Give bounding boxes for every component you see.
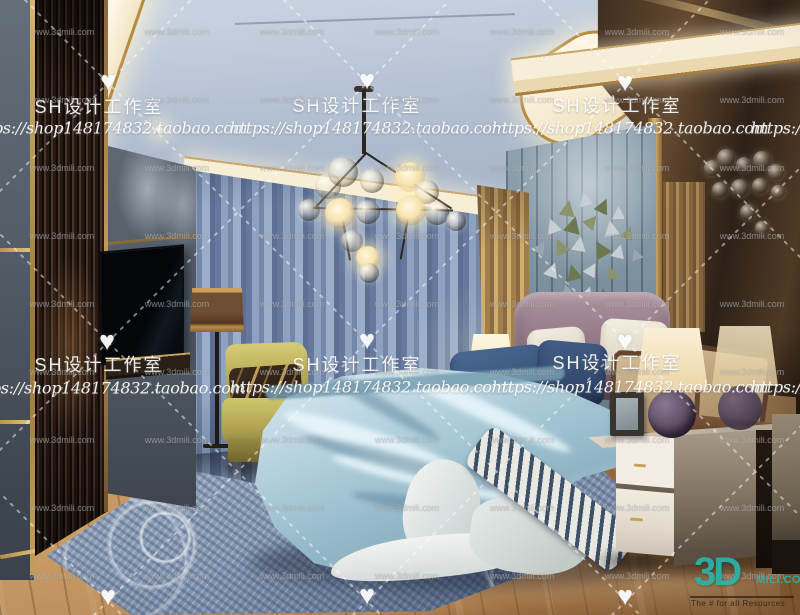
watermark-3dmili-text: www.3dmili.com — [720, 435, 785, 445]
watermark-3dmili-text: www.3dmili.com — [605, 299, 670, 309]
watermark-shop-url: https://shop148174832.taobao.com — [0, 119, 247, 138]
watermark-3dmili-text: www.3dmili.com — [720, 95, 785, 105]
watermark-shop-url: https://shop148174832.taobao.com — [230, 378, 507, 397]
watermark-3dmili-text: www.3dmili.com — [30, 231, 95, 241]
watermark-3dmili-text: www.3dmili.com — [605, 231, 670, 241]
watermark-3dmili-text: www.3dmili.com — [490, 163, 555, 173]
watermark-3dmili-text: www.3dmili.com — [490, 367, 555, 377]
watermark-heart-icon: ♥ — [359, 580, 375, 611]
watermark-3dmili-text: www.3dmili.com — [30, 503, 95, 513]
watermark-3dmili-text: www.3dmili.com — [490, 231, 555, 241]
watermark-3dmili-text: www.3dmili.com — [375, 503, 440, 513]
watermark-3dmili-text: www.3dmili.com — [720, 231, 785, 241]
watermark-3dmili-text: www.3dmili.com — [30, 163, 95, 173]
watermark-3dmili-text: www.3dmili.com — [260, 435, 325, 445]
logo-3d-text: 3D — [694, 550, 739, 595]
watermark-3dmili-text: www.3dmili.com — [375, 163, 440, 173]
watermark-3dmili-text: www.3dmili.com — [720, 163, 785, 173]
watermark-3dmili-text: www.3dmili.com — [375, 27, 440, 37]
watermark-3dmili-text: www.3dmili.com — [490, 503, 555, 513]
watermark-3dmili-text: www.3dmili.com — [145, 299, 210, 309]
watermark-3dmili-text: www.3dmili.com — [605, 367, 670, 377]
watermark-3dmili-text: www.3dmili.com — [145, 571, 210, 581]
watermark-3dmili-text: www.3dmili.com — [145, 503, 210, 513]
watermark-3dmili-text: www.3dmili.com — [375, 231, 440, 241]
watermark-3dmili-text: www.3dmili.com — [375, 367, 440, 377]
watermark-3dmili-text: www.3dmili.com — [260, 163, 325, 173]
watermark-3dmili-text: www.3dmili.com — [30, 571, 95, 581]
watermark-3dmili-text: www.3dmili.com — [30, 299, 95, 309]
watermark-shop-url: https://shop148174832.taobao.com — [751, 119, 800, 138]
logo-tagline: The # for all Resources — [691, 599, 785, 608]
watermark-3dmili-text: www.3dmili.com — [30, 27, 95, 37]
watermark-shop-url: https://shop148174832.taobao.com — [230, 119, 507, 138]
watermark-3dmili-text: www.3dmili.com — [605, 503, 670, 513]
watermark-shop-url: https://shop148174832.taobao.com — [492, 378, 769, 397]
watermark-3dmili-text: www.3dmili.com — [145, 27, 210, 37]
watermark-heart-icon: ♥ — [100, 581, 116, 612]
watermark-3dmili-text: www.3dmili.com — [490, 299, 555, 309]
watermark-3dmili-text: www.3dmili.com — [260, 299, 325, 309]
watermark-shop-url: https://shop148174832.taobao.com — [492, 119, 769, 138]
watermark-3dmili-text: www.3dmili.com — [30, 435, 95, 445]
bedroom-render: ♥♥♥♥♥♥♥♥♥SH设计工作室SH设计工作室SH设计工作室SH设计工作室SH设… — [0, 0, 800, 615]
watermark-3dmili-text: www.3dmili.com — [605, 163, 670, 173]
3dmili-logo: 3D MILI.COM The # for all Resources — [688, 552, 800, 610]
watermark-3dmili-text: www.3dmili.com — [720, 367, 785, 377]
watermark-3dmili-text: www.3dmili.com — [605, 27, 670, 37]
watermark-3dmili-text: www.3dmili.com — [720, 27, 785, 37]
watermark-3dmili-text: www.3dmili.com — [145, 435, 210, 445]
watermark-shop-url: https://shop148174832.taobao.com — [751, 378, 800, 397]
watermark-3dmili-text: www.3dmili.com — [30, 367, 95, 377]
watermark-shop-url: https://shop148174832.taobao.com — [0, 379, 245, 398]
watermark-3dmili-text: www.3dmili.com — [145, 95, 210, 105]
watermark-3dmili-text: www.3dmili.com — [145, 367, 210, 377]
watermark-heart-icon: ♥ — [617, 581, 633, 612]
watermark-3dmili-text: www.3dmili.com — [30, 95, 95, 105]
watermark-3dmili-text: www.3dmili.com — [605, 435, 670, 445]
watermark-3dmili-text: www.3dmili.com — [260, 571, 325, 581]
watermark-3dmili-text: www.3dmili.com — [605, 571, 670, 581]
logo-divider — [690, 596, 794, 598]
watermark-3dmili-text: www.3dmili.com — [260, 95, 325, 105]
watermark-3dmili-text: www.3dmili.com — [375, 299, 440, 309]
watermark-3dmili-text: www.3dmili.com — [260, 503, 325, 513]
watermark-3dmili-text: www.3dmili.com — [260, 231, 325, 241]
watermark-3dmili-text: www.3dmili.com — [145, 163, 210, 173]
watermark-3dmili-text: www.3dmili.com — [145, 231, 210, 241]
watermark-3dmili-text: www.3dmili.com — [490, 27, 555, 37]
watermark-3dmili-text: www.3dmili.com — [720, 503, 785, 513]
watermark-3dmili-text: www.3dmili.com — [260, 367, 325, 377]
watermark-3dmili-text: www.3dmili.com — [375, 95, 440, 105]
logo-suffix-text: MILI.COM — [756, 574, 800, 586]
watermark-3dmili-text: www.3dmili.com — [490, 571, 555, 581]
watermark-3dmili-text: www.3dmili.com — [490, 435, 555, 445]
watermark-3dmili-text: www.3dmili.com — [720, 299, 785, 309]
watermark-3dmili-text: www.3dmili.com — [605, 95, 670, 105]
watermark-3dmili-text: www.3dmili.com — [490, 95, 555, 105]
watermark-3dmili-text: www.3dmili.com — [375, 435, 440, 445]
watermark-3dmili-text: www.3dmili.com — [260, 27, 325, 37]
watermark-3dmili-text: www.3dmili.com — [375, 571, 440, 581]
